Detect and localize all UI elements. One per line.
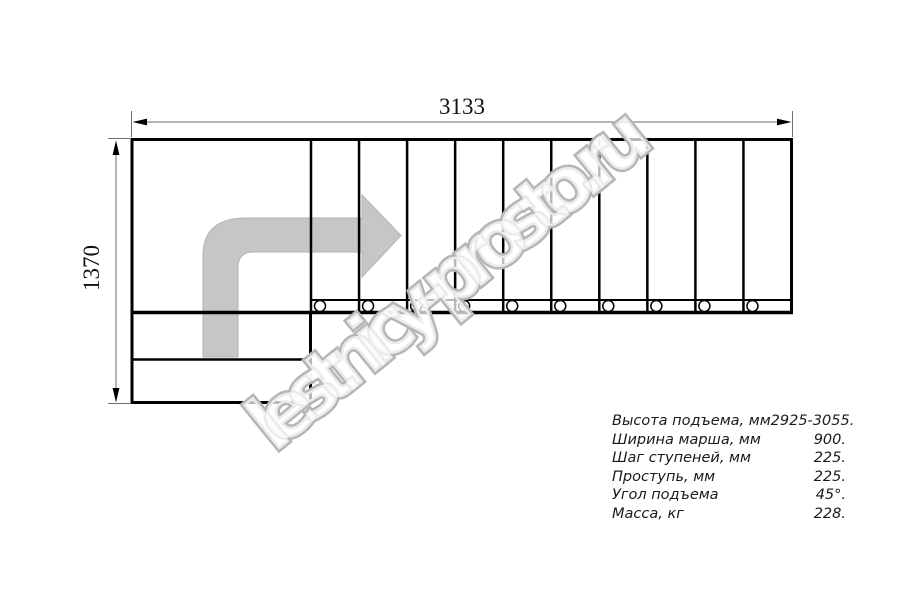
baluster-circle [699,301,710,312]
baluster-circle [651,301,662,312]
spec-label: Ширина марша, мм [612,431,761,450]
spec-row: Шаг ступеней, мм 225. [612,449,846,468]
spec-value: 2925-3055. [771,412,855,431]
spec-value: 225. [814,468,846,487]
baluster-circle [507,301,518,312]
spec-label: Шаг ступеней, мм [612,449,751,468]
spec-value: 900. [814,431,846,450]
specs-table: Высота подъема, мм 2925-3055. Ширина мар… [612,412,846,524]
spec-label: Высота подъема, мм [612,412,771,431]
spec-row: Высота подъема, мм 2925-3055. [612,412,846,431]
baluster-circle [315,301,326,312]
watermark-text: lestnicy-prosto.ru [229,93,662,468]
stair-plan-page: 3133 1370 lestnicy-prosto.ru Высота подъ… [0,0,900,600]
baluster-circle [603,301,614,312]
spec-value: 228. [814,505,846,524]
spec-label: Проступь, мм [612,468,715,487]
spec-row: Ширина марша, мм 900. [612,431,846,450]
baluster-circle [555,301,566,312]
spec-label: Угол подъема [612,486,719,505]
spec-value: 225. [814,449,846,468]
dimension-width-label: 3133 [439,94,485,119]
baluster-circle [747,301,758,312]
spec-row: Масса, кг 228. [612,505,846,524]
dimension-height-label: 1370 [79,245,104,291]
spec-row: Угол подъема 45°. [612,486,846,505]
spec-row: Проступь, мм 225. [612,468,846,487]
spec-value: 45°. [816,486,846,505]
spec-label: Масса, кг [612,505,684,524]
